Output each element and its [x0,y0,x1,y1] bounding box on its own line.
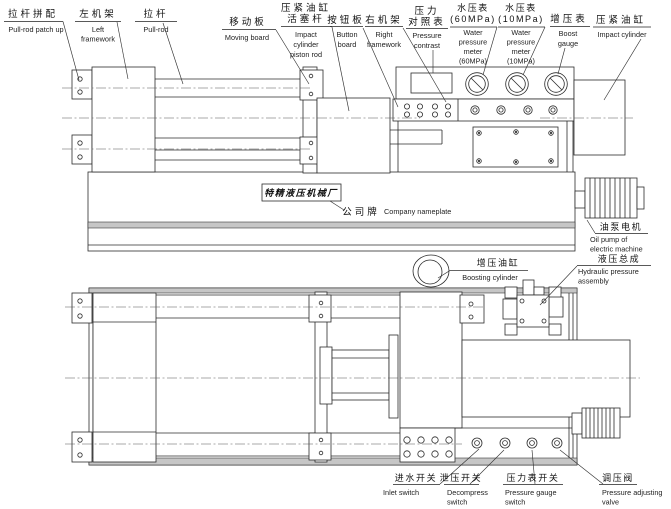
top-view: 特精液压机械厂 [62,67,644,251]
svg-text:Oil pump ofelectric machine: Oil pump ofelectric machine [590,235,643,254]
svg-text:油泵电机: 油泵电机 [600,221,642,232]
svg-text:水压表(10MPa): 水压表(10MPa) [498,2,544,24]
svg-text:Pressurecontrast: Pressurecontrast [412,31,441,50]
svg-text:公司牌: 公司牌 [342,206,380,218]
svg-text:压力对照表: 压力对照表 [408,5,446,28]
left-framework-block [92,67,155,172]
svg-text:Buttonboard: Buttonboard [336,30,357,49]
pull-rod-patch-left-top [72,70,92,99]
svg-text:Rightframework: Rightframework [367,30,401,49]
hydraulic-pressure-assembly [503,280,563,335]
svg-text:Moving board: Moving board [225,33,269,42]
pull-rod-patch-left-bottom [72,135,92,164]
boosting-cylinder-ring [413,255,449,287]
label-button-board: 按钮板 Buttonboard [327,14,398,107]
svg-text:调压阀: 调压阀 [602,473,634,483]
boost-gauge-dial [545,73,568,96]
svg-text:Company nameplate: Company nameplate [384,207,451,216]
svg-text:左机架: 左机架 [79,8,117,20]
decompress-switch-knob [500,438,510,448]
inlet-switch-knob [472,438,482,448]
water-gauge-60mpa [466,73,489,96]
svg-text:液压总成: 液压总成 [598,253,640,264]
nameplate-text: 特精液压机械厂 [264,188,338,198]
pull-rod-patch-plan-bottom [72,432,92,462]
impact-cylinder-body [574,80,625,155]
drawing-canvas: 特精液压机械厂 [0,0,671,509]
cylinder-front-block [400,292,462,428]
svg-text:增压油缸: 增压油缸 [477,257,519,268]
label-water-pressure-meter-10: 水压表(10MPa) Waterpressuremeter(10MPa) [498,2,545,75]
pressure-contrast-chart [411,73,452,93]
svg-text:Pressure gaugeswitch: Pressure gaugeswitch [505,488,557,507]
base-band [88,222,575,228]
svg-text:Leftframework: Leftframework [81,25,115,44]
svg-text:Decompressswitch: Decompressswitch [447,488,488,507]
label-pressure-contrast: 压力对照表 Pressurecontrast [406,5,448,73]
svg-text:Boosting cylinder: Boosting cylinder [462,273,518,282]
svg-text:压紧油缸活塞杆: 压紧油缸活塞杆 [281,2,331,25]
company-nameplate: 特精液压机械厂 [262,184,341,201]
label-water-pressure-meter-60: 水压表(60MPa) Waterpressuremeter(60MPa) [450,2,497,75]
label-pull-rod-patch-up: 拉杆拼配 Pull-rod patch up [4,8,79,80]
oil-pump-motor [575,178,644,218]
svg-text:增压表: 增压表 [550,13,588,25]
machine-drawing: 特精液压机械厂 [0,0,671,509]
svg-text:Impact cylinder: Impact cylinder [597,30,647,39]
svg-text:水压表(60MPa): 水压表(60MPa) [450,2,496,24]
label-oil-pump: 油泵电机 Oil pump ofelectric machine [587,220,648,254]
svg-text:泄压开关: 泄压开关 [440,472,482,483]
svg-text:Boostgauge: Boostgauge [558,29,578,48]
svg-text:拉杆拼配: 拉杆拼配 [8,8,58,20]
svg-text:Pull-rod patch up: Pull-rod patch up [8,25,63,34]
pressure-gauge-switch-knob [527,438,537,448]
svg-text:右机架: 右机架 [365,14,403,26]
svg-text:Inlet switch: Inlet switch [383,488,419,497]
svg-text:进水开关: 进水开关 [395,472,437,483]
left-framework-plan [93,293,156,462]
svg-text:移动板: 移动板 [229,16,267,28]
label-boosting-cylinder: 增压油缸 Boosting cylinder [438,257,528,282]
pressure-adjusting-valve-knob [552,438,562,448]
svg-text:按钮板: 按钮板 [327,14,365,26]
label-boost-gauge: 增压表 Boostgauge [550,13,590,74]
bottom-view [65,255,640,465]
control-panel [396,67,574,99]
svg-text:Impactcylinderpiston rod: Impactcylinderpiston rod [290,30,322,59]
svg-text:压紧油缸: 压紧油缸 [596,14,646,26]
svg-text:Waterpressuremeter(10MPa): Waterpressuremeter(10MPa) [507,28,535,66]
svg-text:Hydraulic pressureassembly: Hydraulic pressureassembly [578,267,639,286]
water-gauge-10mpa [506,73,529,96]
pull-rod-patch-plan-top [72,293,92,323]
cover-plate [473,127,558,167]
pull-rods [155,79,303,160]
svg-text:Pressure adjustingvalve: Pressure adjustingvalve [602,488,662,507]
svg-text:Waterpressuremeter(60MPa): Waterpressuremeter(60MPa) [459,28,487,66]
svg-text:拉杆: 拉杆 [143,8,168,20]
svg-text:压力表开关: 压力表开关 [506,472,559,483]
